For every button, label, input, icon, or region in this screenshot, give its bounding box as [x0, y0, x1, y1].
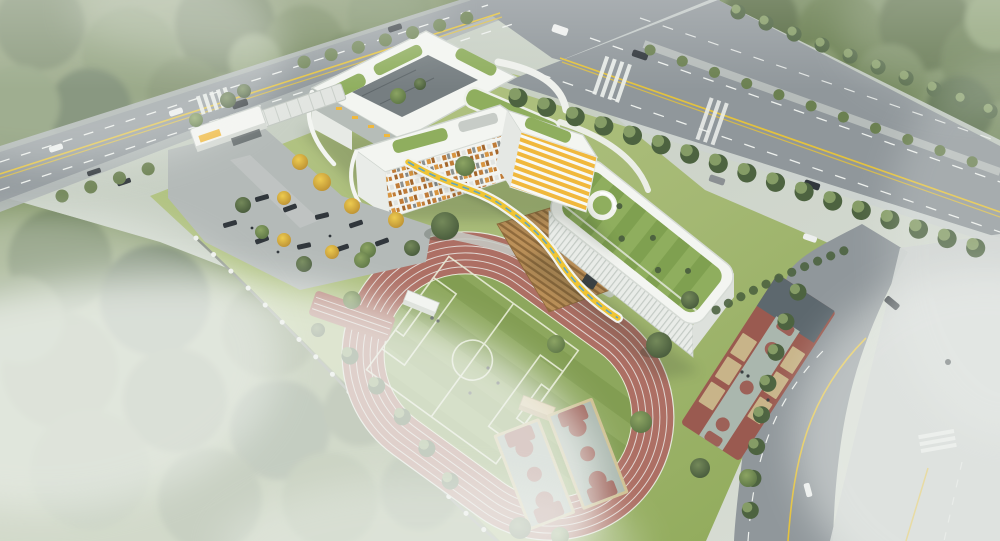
courtyard-tree — [390, 88, 406, 104]
campus-aerial-rendering — [0, 0, 1000, 541]
aerial-render-frame — [0, 0, 1000, 541]
top-light-sheen — [0, 0, 1000, 90]
